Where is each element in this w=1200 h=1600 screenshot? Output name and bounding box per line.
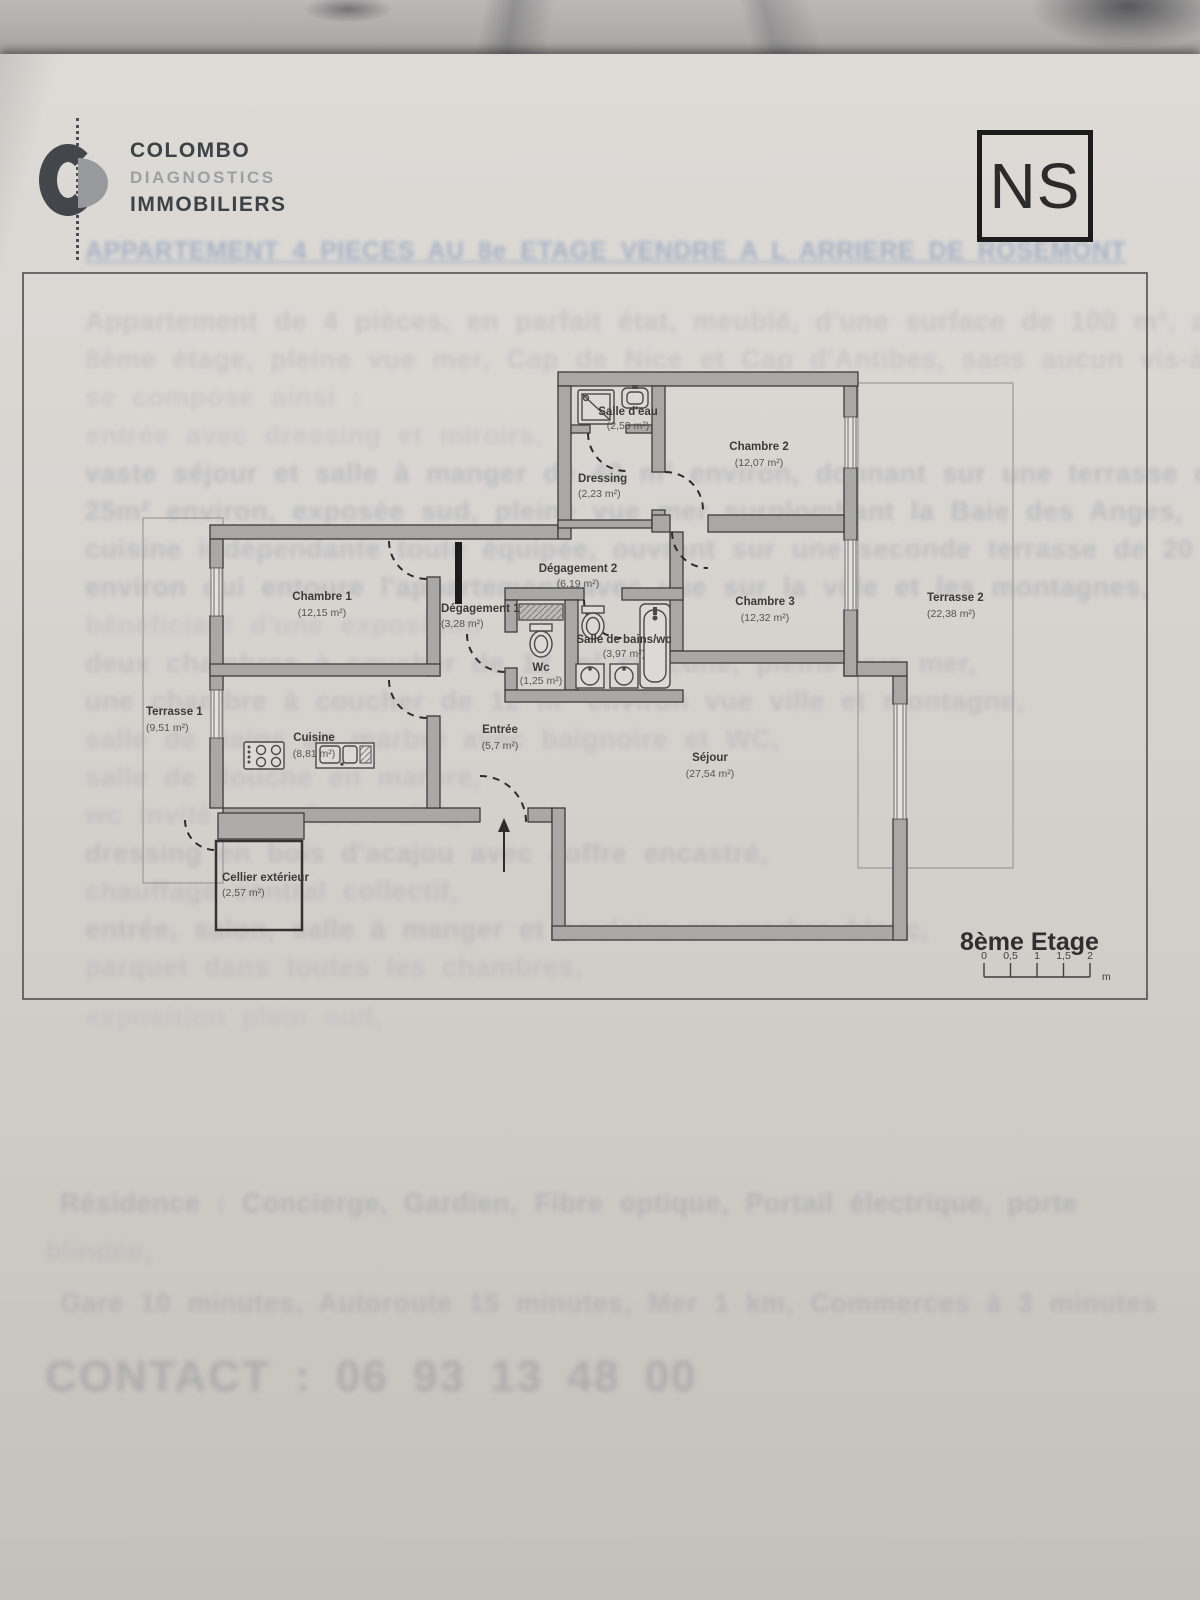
ghost-text-line: exposition plein sud, xyxy=(85,1002,382,1033)
door-arc-wc xyxy=(467,634,505,672)
scale-unit: m xyxy=(1102,971,1111,983)
room-label-terrasse1: Terrasse 1 xyxy=(146,706,203,718)
ghost-text-line: Résidence : Concierge, Gardien, Fibre op… xyxy=(60,1188,1078,1219)
compass-ns-label: NS xyxy=(990,149,1081,223)
room-area-salle-bains: (3,97 m²) xyxy=(603,648,646,660)
marble-table-background xyxy=(0,0,1200,62)
walls xyxy=(210,372,907,940)
door-arc-chambre2 xyxy=(665,472,703,510)
closet-hatch xyxy=(519,604,563,620)
bathtub-icon xyxy=(640,604,670,688)
room-area-degagement2: (6,19 m²) xyxy=(557,578,600,590)
room-label-cellier: Cellier extérieur xyxy=(222,872,309,884)
compass-ns-indicator: NS xyxy=(977,130,1093,242)
door-arc-cellier xyxy=(185,820,215,850)
room-label-entree: Entrée xyxy=(482,724,518,736)
room-area-sejour: (27,54 m²) xyxy=(686,768,734,780)
room-label-chambre2: Chambre 2 xyxy=(729,441,788,453)
ghost-contact-text: CONTACT : 06 93 13 48 00 xyxy=(45,1352,698,1402)
scale-tick-label: 1,5 xyxy=(1056,950,1071,962)
colombo-logo: COLOMBO DIAGNOSTICS IMMOBILIERS xyxy=(30,112,290,262)
room-area-chambre1: (12,15 m²) xyxy=(298,607,346,619)
scale-tick-label: 0,5 xyxy=(1003,950,1018,962)
door-arc-entree xyxy=(480,776,526,822)
brand-line-2: DIAGNOSTICS xyxy=(130,169,287,186)
entrance-arrow-icon xyxy=(498,818,510,872)
room-label-wc: Wc xyxy=(532,662,550,674)
cooktop-icon xyxy=(244,742,284,769)
room-area-chambre3: (12,32 m²) xyxy=(741,612,789,624)
brand-text: COLOMBO DIAGNOSTICS IMMOBILIERS xyxy=(130,140,287,223)
room-label-cuisine: Cuisine xyxy=(293,732,335,744)
scale-tick-label: 1 xyxy=(1034,950,1040,962)
brand-line-1: COLOMBO xyxy=(130,140,287,161)
room-label-sejour: Séjour xyxy=(692,752,728,764)
room-area-degagement1: (3,28 m²) xyxy=(441,618,484,630)
vanity-sinks-icon xyxy=(576,664,638,688)
brand-line-3: IMMOBILIERS xyxy=(130,194,287,215)
room-label-degagement2: Dégagement 2 xyxy=(539,563,618,575)
room-label-terrasse2: Terrasse 2 xyxy=(927,592,984,604)
door-arc-chambre1 xyxy=(389,541,427,579)
wardrobe-bar xyxy=(455,542,462,604)
room-area-cuisine: (8,81 m²) xyxy=(293,748,336,760)
ghost-text-line: blindée, xyxy=(45,1236,152,1267)
ghost-text-line: Gare 10 minutes, Autoroute 15 minutes, M… xyxy=(60,1288,1157,1319)
door-arc-cuisine xyxy=(389,680,427,718)
floor-plan: Salle d'eau (2,53 m²) Chambre 2 (12,07 m… xyxy=(22,272,1148,1000)
room-label-salle-bains: Salle de bains/wc xyxy=(576,634,672,646)
room-label-salle-deau: Salle d'eau xyxy=(598,406,658,418)
toilet-icon-wc xyxy=(530,624,552,657)
room-label-chambre3: Chambre 3 xyxy=(735,596,794,608)
room-area-terrasse2: (22,38 m²) xyxy=(927,608,975,620)
scale-tick-label: 0 xyxy=(981,950,987,962)
room-area-wc: (1,25 m²) xyxy=(520,675,563,687)
room-label-dressing: Dressing xyxy=(578,473,627,485)
room-area-salle-deau: (2,53 m²) xyxy=(607,420,650,432)
room-label-chambre1: Chambre 1 xyxy=(292,591,352,603)
room-area-dressing: (2,23 m²) xyxy=(578,488,621,500)
room-area-entree: (5,7 m²) xyxy=(482,740,519,752)
room-area-terrasse1: (9,51 m²) xyxy=(146,722,189,734)
logo-halfdisc-icon xyxy=(78,158,108,208)
washbasin-icon xyxy=(622,385,648,408)
room-area-chambre2: (12,07 m²) xyxy=(735,457,783,469)
scale-tick-label: 2 xyxy=(1087,950,1093,962)
door-arc-dressing xyxy=(588,433,626,471)
room-area-cellier: (2,57 m²) xyxy=(222,887,265,899)
room-label-degagement1: Dégagement 1 xyxy=(441,603,520,615)
